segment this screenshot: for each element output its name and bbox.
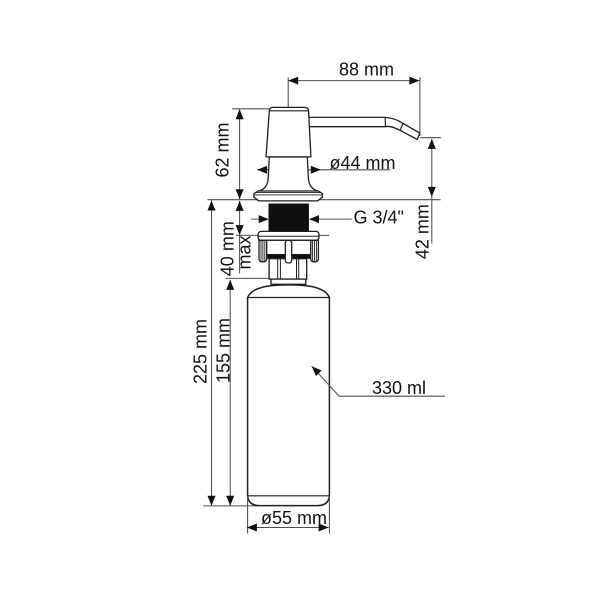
svg-text:42 mm: 42 mm — [413, 204, 433, 259]
svg-text:62 mm: 62 mm — [213, 122, 233, 177]
svg-text:225 mm: 225 mm — [191, 319, 211, 384]
svg-text:ø55 mm: ø55 mm — [261, 508, 327, 528]
svg-text:330 ml: 330 ml — [372, 378, 426, 398]
svg-text:max: max — [235, 235, 255, 269]
svg-text:88 mm: 88 mm — [339, 60, 394, 80]
svg-text:G 3/4": G 3/4" — [354, 207, 404, 227]
svg-text:155 mm: 155 mm — [214, 318, 234, 383]
svg-text:ø44 mm: ø44 mm — [330, 153, 396, 173]
